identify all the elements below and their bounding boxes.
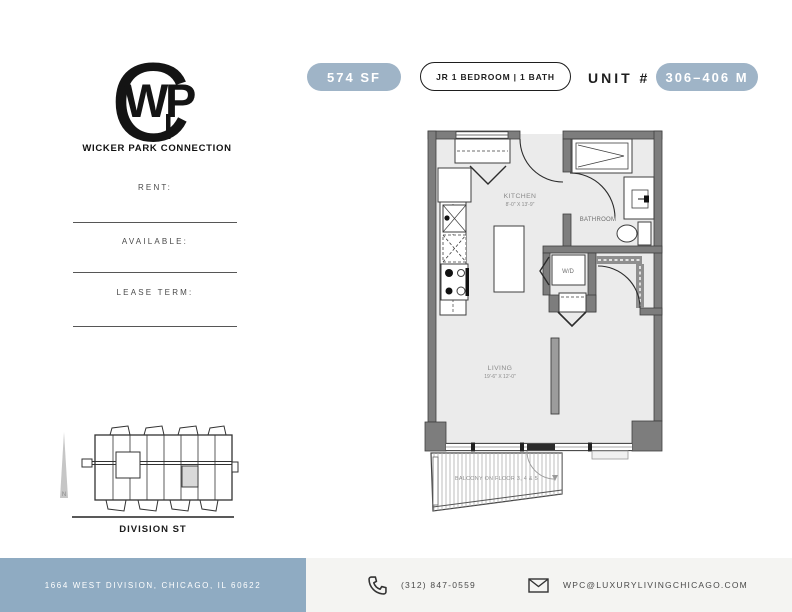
lease-term-blank-line [73,326,237,327]
rent-label: RENT: [73,183,237,192]
logo-letter-w: W [124,74,169,127]
living-partition-wall [551,338,559,414]
logo-p-stem [166,114,171,139]
north-label: N [62,492,66,498]
address-text: 1664 WEST DIVISION, CHICAGO, IL 60622 [0,558,306,612]
inner-room [116,452,140,478]
unit-type-pill: JR 1 BEDROOM | 1 BATH [420,62,571,91]
bathtub [572,139,632,173]
kitchen-label: KITCHEN [504,193,537,200]
building-key-plan: N DIVISION ST [58,420,240,540]
highlighted-unit [182,466,198,487]
dishwasher [443,235,466,262]
lease-term-label: LEASE TERM: [73,288,237,297]
bathroom-label: BATHROOM [580,217,617,223]
unit-number-label: UNIT # [588,70,650,86]
kitchen-window [456,132,508,138]
wd-label: W/D [562,269,574,275]
kitchen-sink [443,205,466,232]
phone-icon [368,576,387,595]
sliding-balcony-door [527,444,555,450]
bay-windows-top [110,426,226,435]
balcony-label: BALCONY ON FLOOR 3, 4 & 5 [455,476,538,482]
kitchen-dims: 8'-0" X 13'-9" [506,202,535,208]
unit-number-badge: 306–406 M [656,63,758,91]
balcony: BALCONY ON FLOOR 3, 4 & 5 [431,451,562,511]
fridge [438,168,471,202]
window-sill [592,451,628,459]
right-notch [232,462,238,472]
brand-name: WICKER PARK CONNECTION [70,143,244,154]
mail-icon [528,578,549,593]
street-label: DIVISION ST [119,524,186,535]
footer-bar: 1664 WEST DIVISION, CHICAGO, IL 60622 (3… [0,558,792,612]
north-arrow-icon [60,432,68,498]
available-blank-line [73,272,237,273]
floor-plan: BALCONY ON FLOOR 3, 4 & 5 [418,118,670,542]
available-label: AVAILABLE: [73,237,237,246]
email-contact[interactable]: WPC@LUXURYLIVINGCHICAGO.COM [528,558,748,612]
living-label: LIVING [488,365,513,372]
phone-number: (312) 847-0559 [401,580,476,590]
kitchen-island [494,226,524,292]
phone-contact[interactable]: (312) 847-0559 [368,558,476,612]
bathroom-sink [624,177,654,219]
stove [441,264,469,300]
brand-logo: C W P [88,52,228,147]
rent-blank-line [73,222,237,223]
bay-windows-bottom [106,500,218,511]
email-address: WPC@LUXURYLIVINGCHICAGO.COM [563,580,748,590]
flyer-page: 574 SF JR 1 BEDROOM | 1 BATH UNIT # 306–… [0,0,792,612]
sqft-badge: 574 SF [307,63,401,91]
living-dims: 19'-6" X 12'-0" [484,374,516,380]
